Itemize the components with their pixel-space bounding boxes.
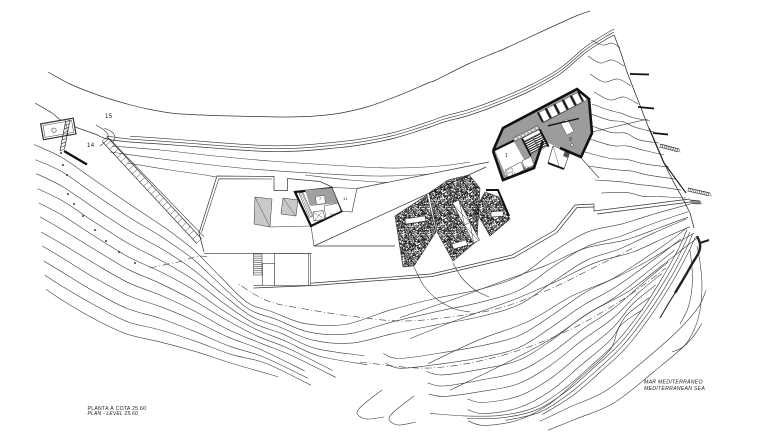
svg-text:11: 11 — [511, 171, 516, 176]
svg-text:10: 10 — [330, 213, 335, 217]
svg-text:14: 14 — [87, 143, 95, 149]
svg-text:13: 13 — [524, 165, 530, 170]
svg-text:11: 11 — [343, 196, 348, 201]
svg-text:1: 1 — [505, 153, 508, 159]
svg-text:MEDITERRANEAN SEA: MEDITERRANEAN SEA — [644, 386, 705, 392]
svg-text:MAR MEDITERRÁNEO: MAR MEDITERRÁNEO — [644, 379, 703, 386]
svg-text:PLAN - LEVEL 25.60: PLAN - LEVEL 25.60 — [88, 411, 139, 417]
svg-text:7: 7 — [319, 196, 322, 201]
svg-text:15: 15 — [105, 114, 113, 120]
svg-text:9: 9 — [569, 137, 572, 143]
